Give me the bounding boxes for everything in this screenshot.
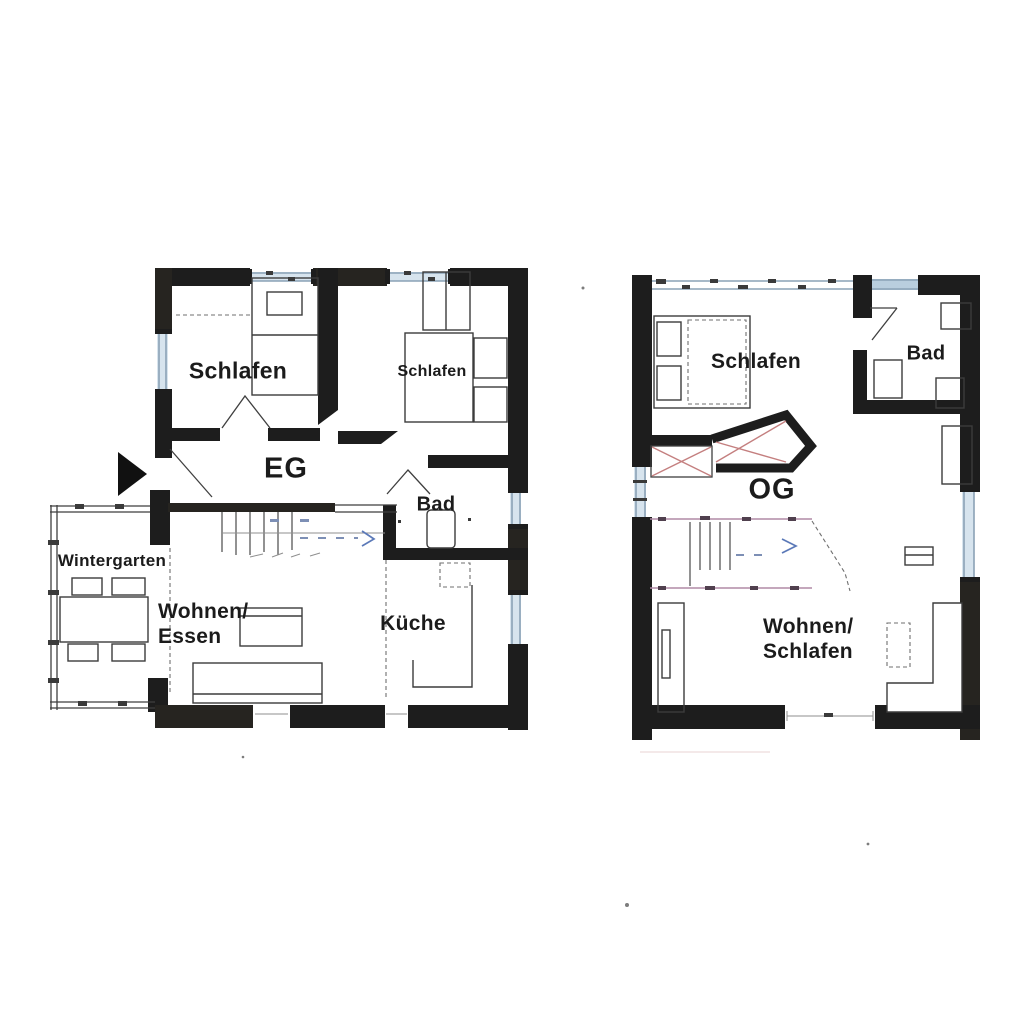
eg-plan <box>48 268 528 730</box>
eg-room-label-wohnen-line2: Essen <box>158 625 248 650</box>
og-floor-code-label: OG <box>748 474 795 507</box>
eg-room-label-wohnen-line1: Wohnen/ <box>158 600 248 625</box>
og-room-label-wohnen-schlafen: Wohnen/ Schlafen <box>763 615 853 665</box>
eg-walls <box>148 268 528 730</box>
scanned-drawing: Schlafen Schlafen EG Bad Wintergarten Wo… <box>0 0 1024 1024</box>
og-room-label-bad: Bad <box>907 343 946 366</box>
eg-stairs <box>222 505 397 557</box>
eg-room-label-wohnen-essen: Wohnen/ Essen <box>158 600 248 650</box>
og-stairs <box>650 516 850 591</box>
eg-wintergarten-glazing <box>48 504 155 710</box>
floor-plan-drawing <box>0 0 1024 1024</box>
og-door-swings <box>870 308 897 340</box>
og-room-label-wohnen-line1: Wohnen/ <box>763 615 853 640</box>
floor-plan-document: Schlafen Schlafen EG Bad Wintergarten Wo… <box>0 0 1024 1024</box>
eg-room-label-wintergarten: Wintergarten <box>58 551 166 571</box>
entrance-arrow-icon <box>118 452 147 496</box>
eg-floor-code-label: EG <box>264 453 308 486</box>
eg-room-label-bad: Bad <box>417 494 456 517</box>
og-stair-direction-arrow-icon <box>782 539 796 553</box>
eg-room-label-kueche: Küche <box>380 612 446 636</box>
eg-room-label-schlafen-1: Schlafen <box>189 358 287 385</box>
og-room-label-schlafen: Schlafen <box>711 350 801 374</box>
eg-room-label-schlafen-2: Schlafen <box>397 363 466 381</box>
og-room-label-wohnen-line2: Schlafen <box>763 640 853 665</box>
